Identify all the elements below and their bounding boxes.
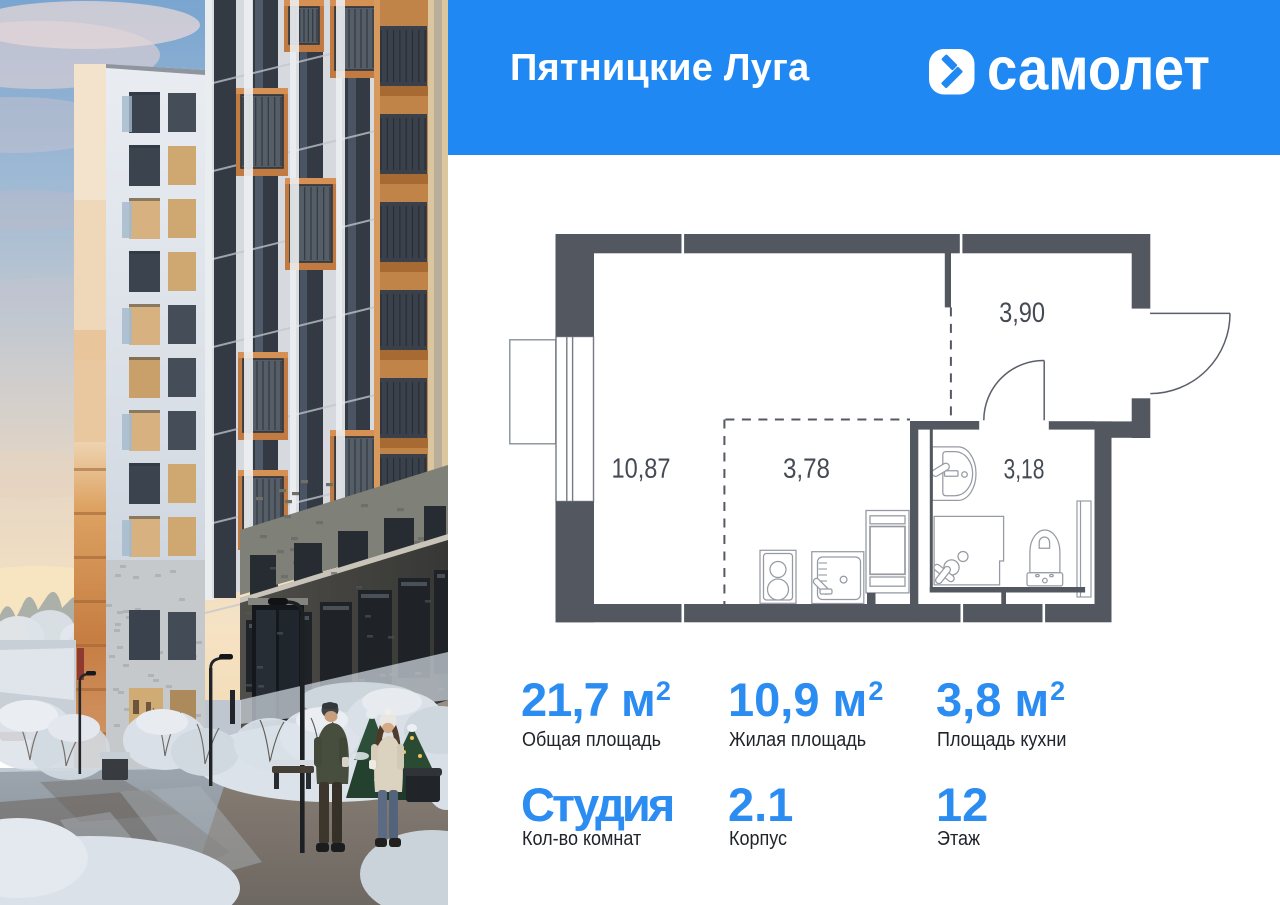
svg-text:3,18: 3,18 — [1003, 453, 1044, 484]
svg-text:10,87: 10,87 — [611, 453, 670, 484]
svg-text:3,78: 3,78 — [783, 453, 830, 484]
svg-text:3,90: 3,90 — [999, 297, 1045, 328]
